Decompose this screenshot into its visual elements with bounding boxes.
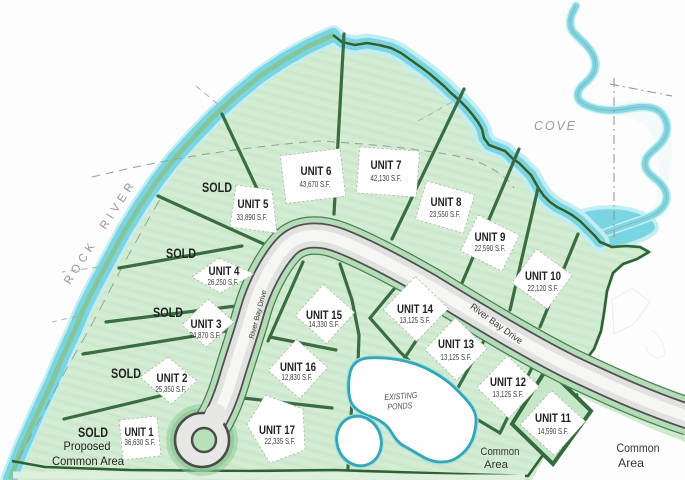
svg-text:UNIT 2: UNIT 2 — [157, 371, 188, 385]
svg-text:22,590 S.F.: 22,590 S.F. — [475, 244, 506, 253]
svg-text:UNIT 8: UNIT 8 — [431, 195, 462, 209]
svg-text:SOLD: SOLD — [153, 305, 183, 320]
svg-text:Proposed: Proposed — [64, 439, 111, 453]
svg-text:UNIT 16: UNIT 16 — [280, 360, 316, 374]
svg-text:UNIT 1: UNIT 1 — [125, 425, 154, 439]
svg-text:33,890 S.F.: 33,890 S.F. — [237, 213, 268, 222]
svg-text:UNIT 17: UNIT 17 — [259, 423, 295, 437]
svg-text:22,120 S.F.: 22,120 S.F. — [528, 284, 559, 293]
svg-text:Area: Area — [618, 456, 644, 470]
svg-text:26,250 S.F.: 26,250 S.F. — [208, 278, 239, 287]
svg-text:UNIT 10: UNIT 10 — [525, 269, 561, 283]
svg-text:UNIT 3: UNIT 3 — [191, 317, 222, 331]
svg-text:UNIT 12: UNIT 12 — [490, 375, 526, 389]
svg-text:42,130 S.F.: 42,130 S.F. — [371, 174, 402, 183]
svg-text:13,125 S.F.: 13,125 S.F. — [400, 316, 431, 325]
svg-text:14,330 S.F.: 14,330 S.F. — [309, 320, 340, 329]
svg-text:UNIT 14: UNIT 14 — [397, 302, 433, 316]
svg-text:UNIT 6: UNIT 6 — [301, 164, 332, 178]
svg-text:12,830 S.F.: 12,830 S.F. — [282, 373, 313, 382]
svg-text:13,125 S.F.: 13,125 S.F. — [493, 390, 524, 399]
svg-text:SOLD: SOLD — [166, 246, 196, 261]
svg-text:23,550 S.F.: 23,550 S.F. — [430, 210, 461, 219]
svg-text:36,630 S.F.: 36,630 S.F. — [125, 438, 156, 447]
svg-text:PONDS: PONDS — [387, 400, 413, 412]
svg-text:13,125 S.F.: 13,125 S.F. — [441, 353, 472, 362]
svg-text:UNIT 5: UNIT 5 — [238, 197, 269, 211]
svg-text:UNIT 9: UNIT 9 — [475, 230, 506, 244]
svg-text:SOLD: SOLD — [111, 366, 141, 381]
svg-text:22,335 S.F.: 22,335 S.F. — [265, 437, 296, 446]
svg-text:UNIT 13: UNIT 13 — [438, 337, 474, 351]
svg-text:Common: Common — [481, 446, 520, 458]
svg-text:43,670 S.F.: 43,670 S.F. — [300, 180, 331, 189]
svg-text:Area: Area — [484, 459, 509, 471]
svg-text:SOLD: SOLD — [202, 180, 232, 195]
svg-text:SOLD: SOLD — [78, 425, 108, 440]
svg-text:24,870 S.F.: 24,870 S.F. — [190, 331, 221, 340]
svg-text:25,350 S.F.: 25,350 S.F. — [156, 385, 187, 394]
svg-text:UNIT 4: UNIT 4 — [209, 264, 240, 278]
svg-text:Common Area: Common Area — [52, 454, 124, 468]
svg-text:COVE: COVE — [534, 119, 580, 133]
svg-text:Common: Common — [617, 441, 660, 455]
svg-text:14,590 S.F.: 14,590 S.F. — [538, 427, 569, 436]
svg-text:UNIT 11: UNIT 11 — [535, 411, 571, 425]
svg-text:UNIT 7: UNIT 7 — [371, 158, 402, 172]
